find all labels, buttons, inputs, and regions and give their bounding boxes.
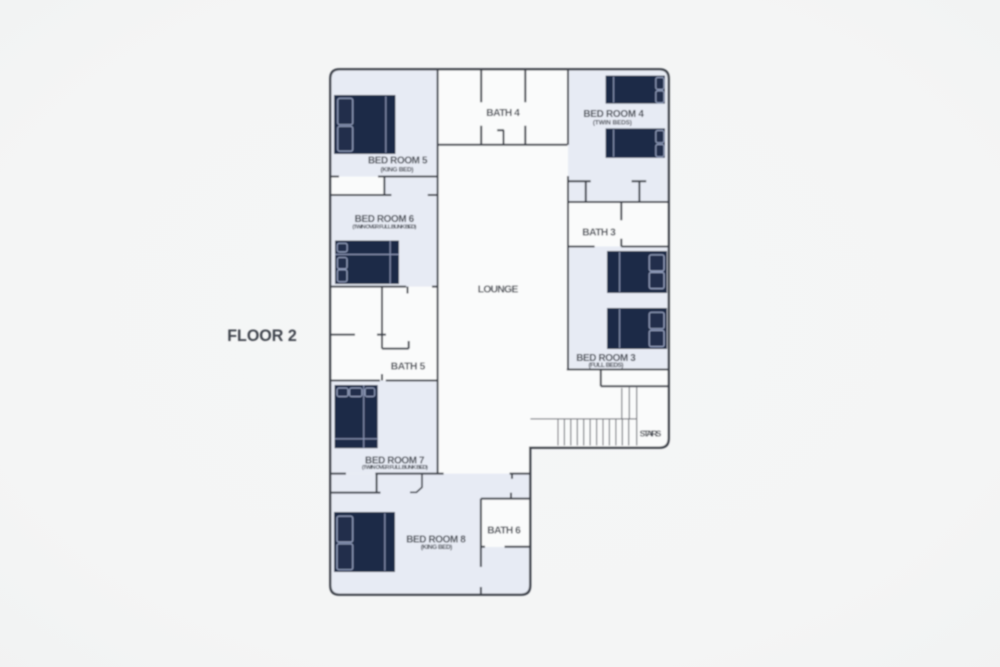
svg-text:FLOOR 2: FLOOR 2 <box>227 326 297 345</box>
svg-text:(KING BED): (KING BED) <box>421 544 453 551</box>
svg-text:(TWIN OVER FULL BUNK BED): (TWIN OVER FULL BUNK BED) <box>362 465 428 471</box>
svg-text:BATH 3: BATH 3 <box>582 228 616 239</box>
svg-text:STAIRS: STAIRS <box>640 428 662 438</box>
svg-text:BATH 6: BATH 6 <box>487 526 521 537</box>
svg-text:(KING BED): (KING BED) <box>381 166 414 173</box>
svg-text:(TWIN BEDS): (TWIN BEDS) <box>593 119 632 126</box>
svg-text:(FULL BEDS): (FULL BEDS) <box>589 362 624 369</box>
svg-text:BED ROOM 6: BED ROOM 6 <box>355 214 415 225</box>
svg-text:(TWIN OVER FULL BUNK BED): (TWIN OVER FULL BUNK BED) <box>352 224 416 230</box>
svg-text:BATH 5: BATH 5 <box>391 361 426 372</box>
svg-text:LOUNGE: LOUNGE <box>478 284 519 295</box>
svg-text:BATH 4: BATH 4 <box>486 108 520 119</box>
svg-text:BED ROOM 5: BED ROOM 5 <box>368 156 428 167</box>
